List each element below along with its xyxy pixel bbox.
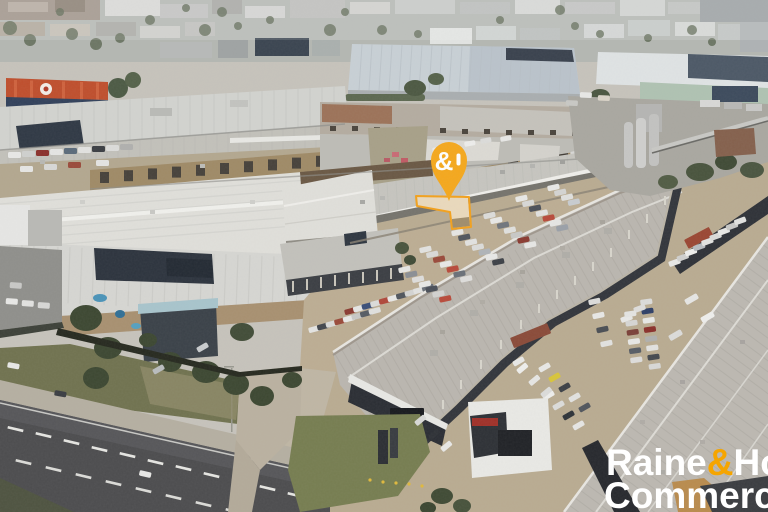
svg-text:Commerc: Commerc	[604, 475, 768, 512]
